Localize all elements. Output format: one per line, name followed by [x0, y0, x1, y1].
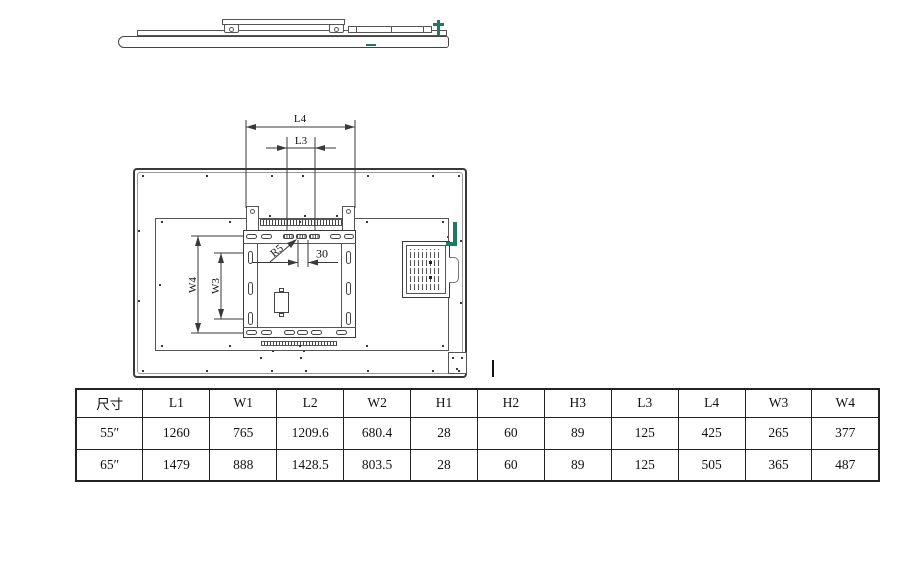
table-cell: 125: [611, 417, 678, 449]
bracket-foot-right: [329, 24, 344, 33]
screw-dot: [367, 175, 369, 177]
cursor-tick: [492, 360, 494, 377]
side-view-rail: [348, 26, 432, 33]
spec-table: 尺寸 L1 W1 L2 W2 H1 H2 H3 L3 L4 W3 W4 55″ …: [75, 388, 880, 482]
top-vent-strip: [260, 219, 342, 226]
dim-label-l4: L4: [294, 113, 306, 125]
side-view-panel-body: [118, 36, 449, 48]
screw-dot: [458, 370, 460, 372]
screw-dot: [300, 357, 302, 359]
table-cell: 1260: [143, 417, 210, 449]
table-cell: 888: [210, 449, 277, 481]
screw-dot: [460, 302, 462, 304]
header-cell: W2: [344, 389, 411, 417]
screw-dot: [142, 370, 144, 372]
table-row-65: 65″ 1479 888 1428.5 803.5 28 60 89 125 5…: [76, 449, 879, 481]
table-cell: 505: [678, 449, 745, 481]
io-module-contact: [429, 261, 432, 264]
rail-slot: [248, 312, 253, 325]
rail-slot: [248, 282, 253, 295]
mount-slot: [344, 234, 354, 239]
header-cell: L3: [611, 389, 678, 417]
table-cell: 425: [678, 417, 745, 449]
screw-dot: [269, 215, 271, 217]
table-cell: 265: [745, 417, 812, 449]
panel-side-view: [0, 0, 900, 60]
antenna-screw-cap-icon: [433, 23, 444, 26]
wall-hook-foot-icon: [446, 242, 457, 246]
screw-dot: [442, 221, 444, 223]
rail-slot: [346, 251, 351, 264]
screw-dot: [138, 300, 140, 302]
table-cell: 487: [812, 449, 879, 481]
mount-slot-ribbed: [283, 234, 294, 239]
io-module-handle: [449, 257, 459, 283]
header-cell: 尺寸: [76, 389, 143, 417]
screw-dot: [159, 284, 161, 286]
header-cell: L1: [143, 389, 210, 417]
dim-label-30: 30: [316, 247, 328, 262]
rail-slot: [346, 312, 351, 325]
header-cell: W1: [210, 389, 277, 417]
spec-sheet-page: L4 L3 W4 W3 R5 30 尺寸 L1 W1 L2 W2 H1 H2 H…: [0, 0, 900, 585]
power-indicator-mark: [366, 44, 376, 46]
mount-slot-ribbed: [296, 234, 307, 239]
io-module-vents: [410, 249, 442, 290]
table-cell: 28: [411, 449, 478, 481]
screw-dot: [460, 240, 462, 242]
table-cell: 65″: [76, 449, 143, 481]
screw-dot: [260, 357, 262, 359]
screw-dot: [299, 221, 301, 223]
screw-dot: [206, 370, 208, 372]
dim-label-l3: L3: [295, 135, 307, 147]
screw-dot: [229, 345, 231, 347]
side-view-wall-bracket: [222, 19, 345, 25]
table-cell: 1209.6: [277, 417, 344, 449]
screw-dot: [366, 221, 368, 223]
mount-slot: [261, 330, 272, 335]
table-header-row: 尺寸 L1 W1 L2 W2 H1 H2 H3 L3 L4 W3 W4: [76, 389, 879, 417]
io-module-contact: [429, 276, 432, 279]
screw-dot: [299, 345, 301, 347]
screw-dot: [272, 350, 274, 352]
table-cell: 60: [477, 449, 544, 481]
table-cell: 125: [611, 449, 678, 481]
label-box-tab: [279, 288, 284, 292]
screw-dot: [432, 175, 434, 177]
table-cell: 803.5: [344, 449, 411, 481]
screw-dot: [271, 175, 273, 177]
screw-dot: [305, 370, 307, 372]
screw-hole-icon: [250, 209, 255, 214]
header-cell: W3: [745, 389, 812, 417]
screw-dot: [138, 230, 140, 232]
screw-dot: [458, 175, 460, 177]
table-cell: 55″: [76, 417, 143, 449]
rail-slot: [248, 251, 253, 264]
dim-label-w4: W4: [187, 277, 199, 293]
header-cell: L2: [277, 389, 344, 417]
table-cell: 377: [812, 417, 879, 449]
screw-dot: [229, 221, 231, 223]
screw-dot: [432, 370, 434, 372]
mount-slot: [284, 330, 295, 335]
screw-hole-icon: [229, 27, 234, 32]
table-cell: 765: [210, 417, 277, 449]
screw-dot: [304, 215, 306, 217]
header-cell: H1: [411, 389, 478, 417]
screw-dot: [142, 175, 144, 177]
table-cell: 89: [544, 449, 611, 481]
table-cell: 365: [745, 449, 812, 481]
screw-dot: [367, 370, 369, 372]
mount-slot: [330, 234, 341, 239]
screw-dot: [303, 350, 305, 352]
screw-dot: [452, 357, 454, 359]
table-cell: 1428.5: [277, 449, 344, 481]
label-box-tab: [279, 313, 284, 317]
mount-slot: [246, 330, 257, 335]
bracket-foot-left: [224, 24, 239, 33]
header-cell: L4: [678, 389, 745, 417]
table-cell: 1479: [143, 449, 210, 481]
hanger-post-right: [342, 206, 355, 232]
table-cell: 28: [411, 417, 478, 449]
screw-hole-icon: [346, 209, 351, 214]
screw-dot: [271, 370, 273, 372]
screw-dot: [161, 345, 163, 347]
mount-slot: [246, 234, 257, 239]
mount-slot: [261, 234, 272, 239]
screw-dot: [461, 357, 463, 359]
screw-dot: [366, 345, 368, 347]
mount-slot: [297, 330, 308, 335]
table-cell: 60: [477, 417, 544, 449]
screw-dot: [442, 345, 444, 347]
screw-dot: [161, 221, 163, 223]
hook-screw-dot: [447, 236, 449, 238]
header-cell: H3: [544, 389, 611, 417]
label-box: [274, 292, 289, 313]
screw-dot: [336, 215, 338, 217]
rail-slot: [346, 282, 351, 295]
mount-slot-ribbed: [309, 234, 320, 239]
hanger-post-left: [246, 206, 259, 232]
table-row-55: 55″ 1260 765 1209.6 680.4 28 60 89 125 4…: [76, 417, 879, 449]
panel-rear-view: [0, 100, 900, 390]
screw-dot: [206, 175, 208, 177]
mount-bracket: [243, 230, 356, 338]
screw-dot: [302, 175, 304, 177]
screw-hole-icon: [334, 27, 339, 32]
table-cell: 680.4: [344, 417, 411, 449]
header-cell: H2: [477, 389, 544, 417]
table-cell: 89: [544, 417, 611, 449]
mount-slot: [311, 330, 322, 335]
dim-label-w3: W3: [210, 278, 222, 294]
mount-slot: [336, 330, 347, 335]
header-cell: W4: [812, 389, 879, 417]
